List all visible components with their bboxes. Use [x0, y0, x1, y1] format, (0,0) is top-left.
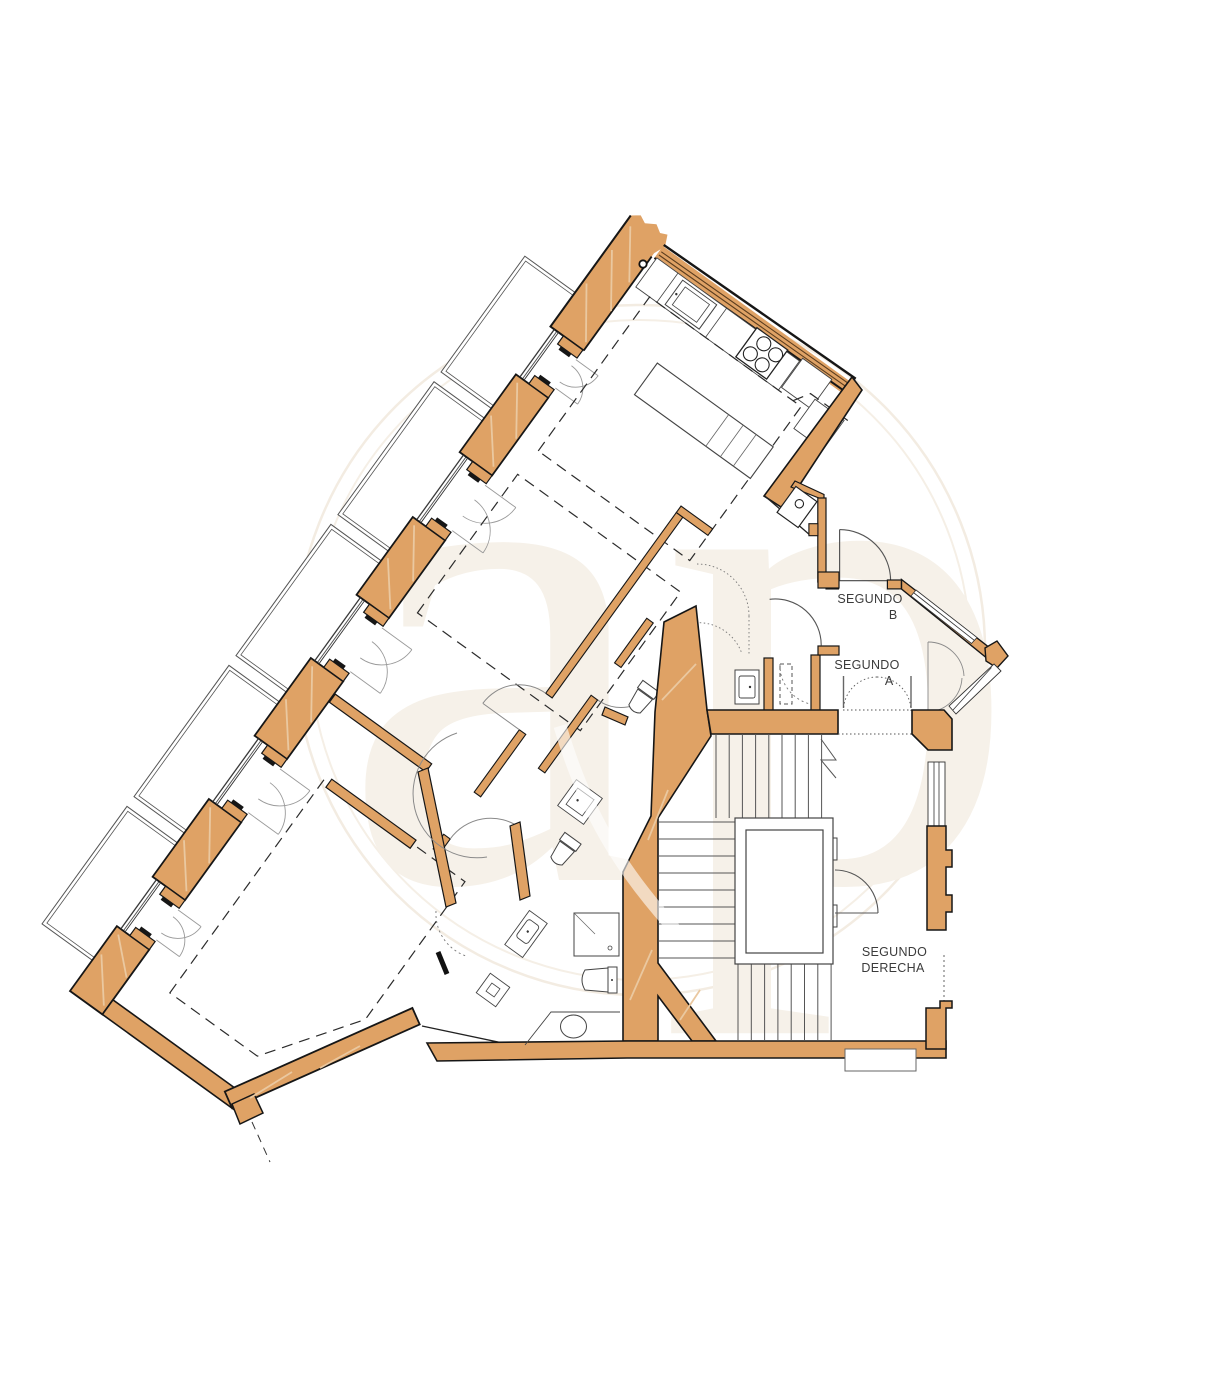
svg-text:SEGUNDO: SEGUNDO	[862, 945, 927, 959]
svg-text:SEGUNDO: SEGUNDO	[834, 658, 899, 672]
svg-text:B: B	[889, 608, 897, 622]
svg-text:A: A	[885, 674, 894, 688]
svg-text:DERECHA: DERECHA	[861, 961, 925, 975]
svg-text:SEGUNDO: SEGUNDO	[837, 592, 902, 606]
